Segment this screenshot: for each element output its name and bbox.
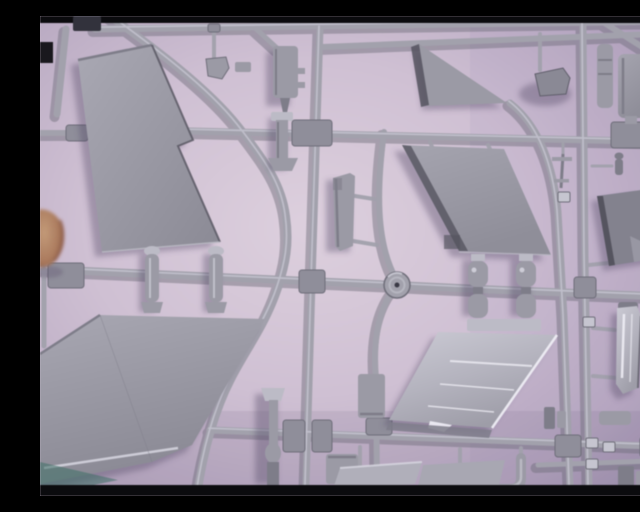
frame-notch-left (40, 42, 53, 63)
injection-gate-hub (384, 272, 410, 298)
letterbox-top (40, 16, 640, 23)
part-vertical-piece (597, 44, 613, 108)
part-keel-piece (333, 173, 355, 251)
frame-notch-top (73, 16, 101, 31)
part-rect-piece-mid (358, 374, 385, 418)
letterbox-bottom (40, 485, 640, 496)
part-fuselage-half (618, 54, 640, 124)
part-tiny-figure (615, 153, 624, 176)
photo-model-kit-sprue: Blurry close-up photograph of a light-gr… (40, 16, 640, 496)
part-intake-duct (616, 302, 640, 394)
